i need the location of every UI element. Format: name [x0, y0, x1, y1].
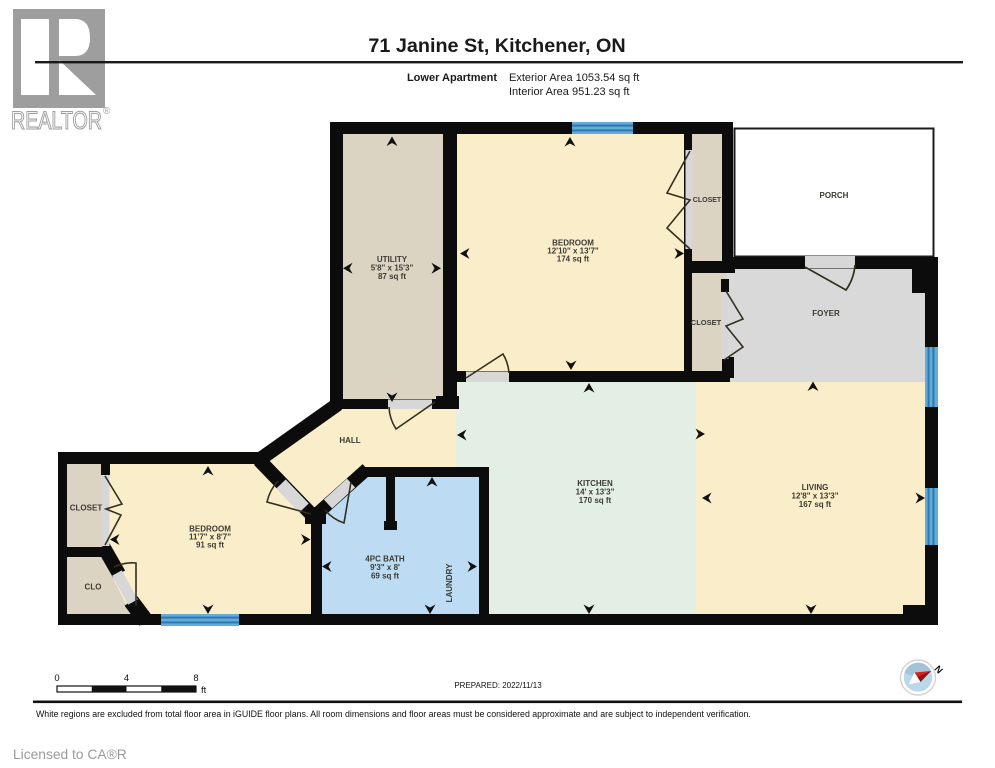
svg-text:174 sq ft: 174 sq ft: [557, 255, 590, 264]
svg-text:170 sq ft: 170 sq ft: [579, 496, 612, 505]
svg-text:Exterior Area 1053.54 sq ft: Exterior Area 1053.54 sq ft: [509, 72, 639, 84]
svg-text:0: 0: [54, 673, 59, 684]
svg-text:ft: ft: [201, 685, 207, 696]
svg-text:FOYER: FOYER: [812, 309, 840, 318]
svg-text:91 sq ft: 91 sq ft: [196, 541, 224, 550]
svg-text:87 sq ft: 87 sq ft: [378, 272, 406, 281]
svg-text:CLOSET: CLOSET: [70, 504, 103, 513]
svg-text:CLO: CLO: [85, 583, 102, 592]
svg-text:Interior Area 951.23 sq ft: Interior Area 951.23 sq ft: [509, 86, 629, 98]
svg-text:CLOSET: CLOSET: [691, 318, 722, 327]
svg-text:71 Janine St, Kitchener, ON: 71 Janine St, Kitchener, ON: [368, 35, 625, 57]
svg-text:HALL: HALL: [339, 436, 360, 445]
svg-text:White regions are excluded fro: White regions are excluded from total fl…: [36, 709, 751, 719]
svg-text:REALTOR: REALTOR: [11, 107, 102, 135]
svg-text:167 sq ft: 167 sq ft: [799, 500, 832, 509]
svg-text:PREPARED: 2022/11/13: PREPARED: 2022/11/13: [454, 681, 542, 690]
svg-text:CLOSET: CLOSET: [693, 197, 722, 204]
svg-text:®: ®: [103, 106, 111, 117]
svg-text:LAUNDRY: LAUNDRY: [445, 563, 454, 602]
svg-text:4: 4: [124, 673, 129, 684]
svg-text:PORCH: PORCH: [820, 191, 849, 200]
svg-text:8: 8: [193, 673, 198, 684]
svg-text:Lower Apartment: Lower Apartment: [407, 72, 497, 84]
svg-text:Licensed to CA®R: Licensed to CA®R: [13, 747, 127, 762]
svg-text:69 sq ft: 69 sq ft: [371, 572, 399, 581]
